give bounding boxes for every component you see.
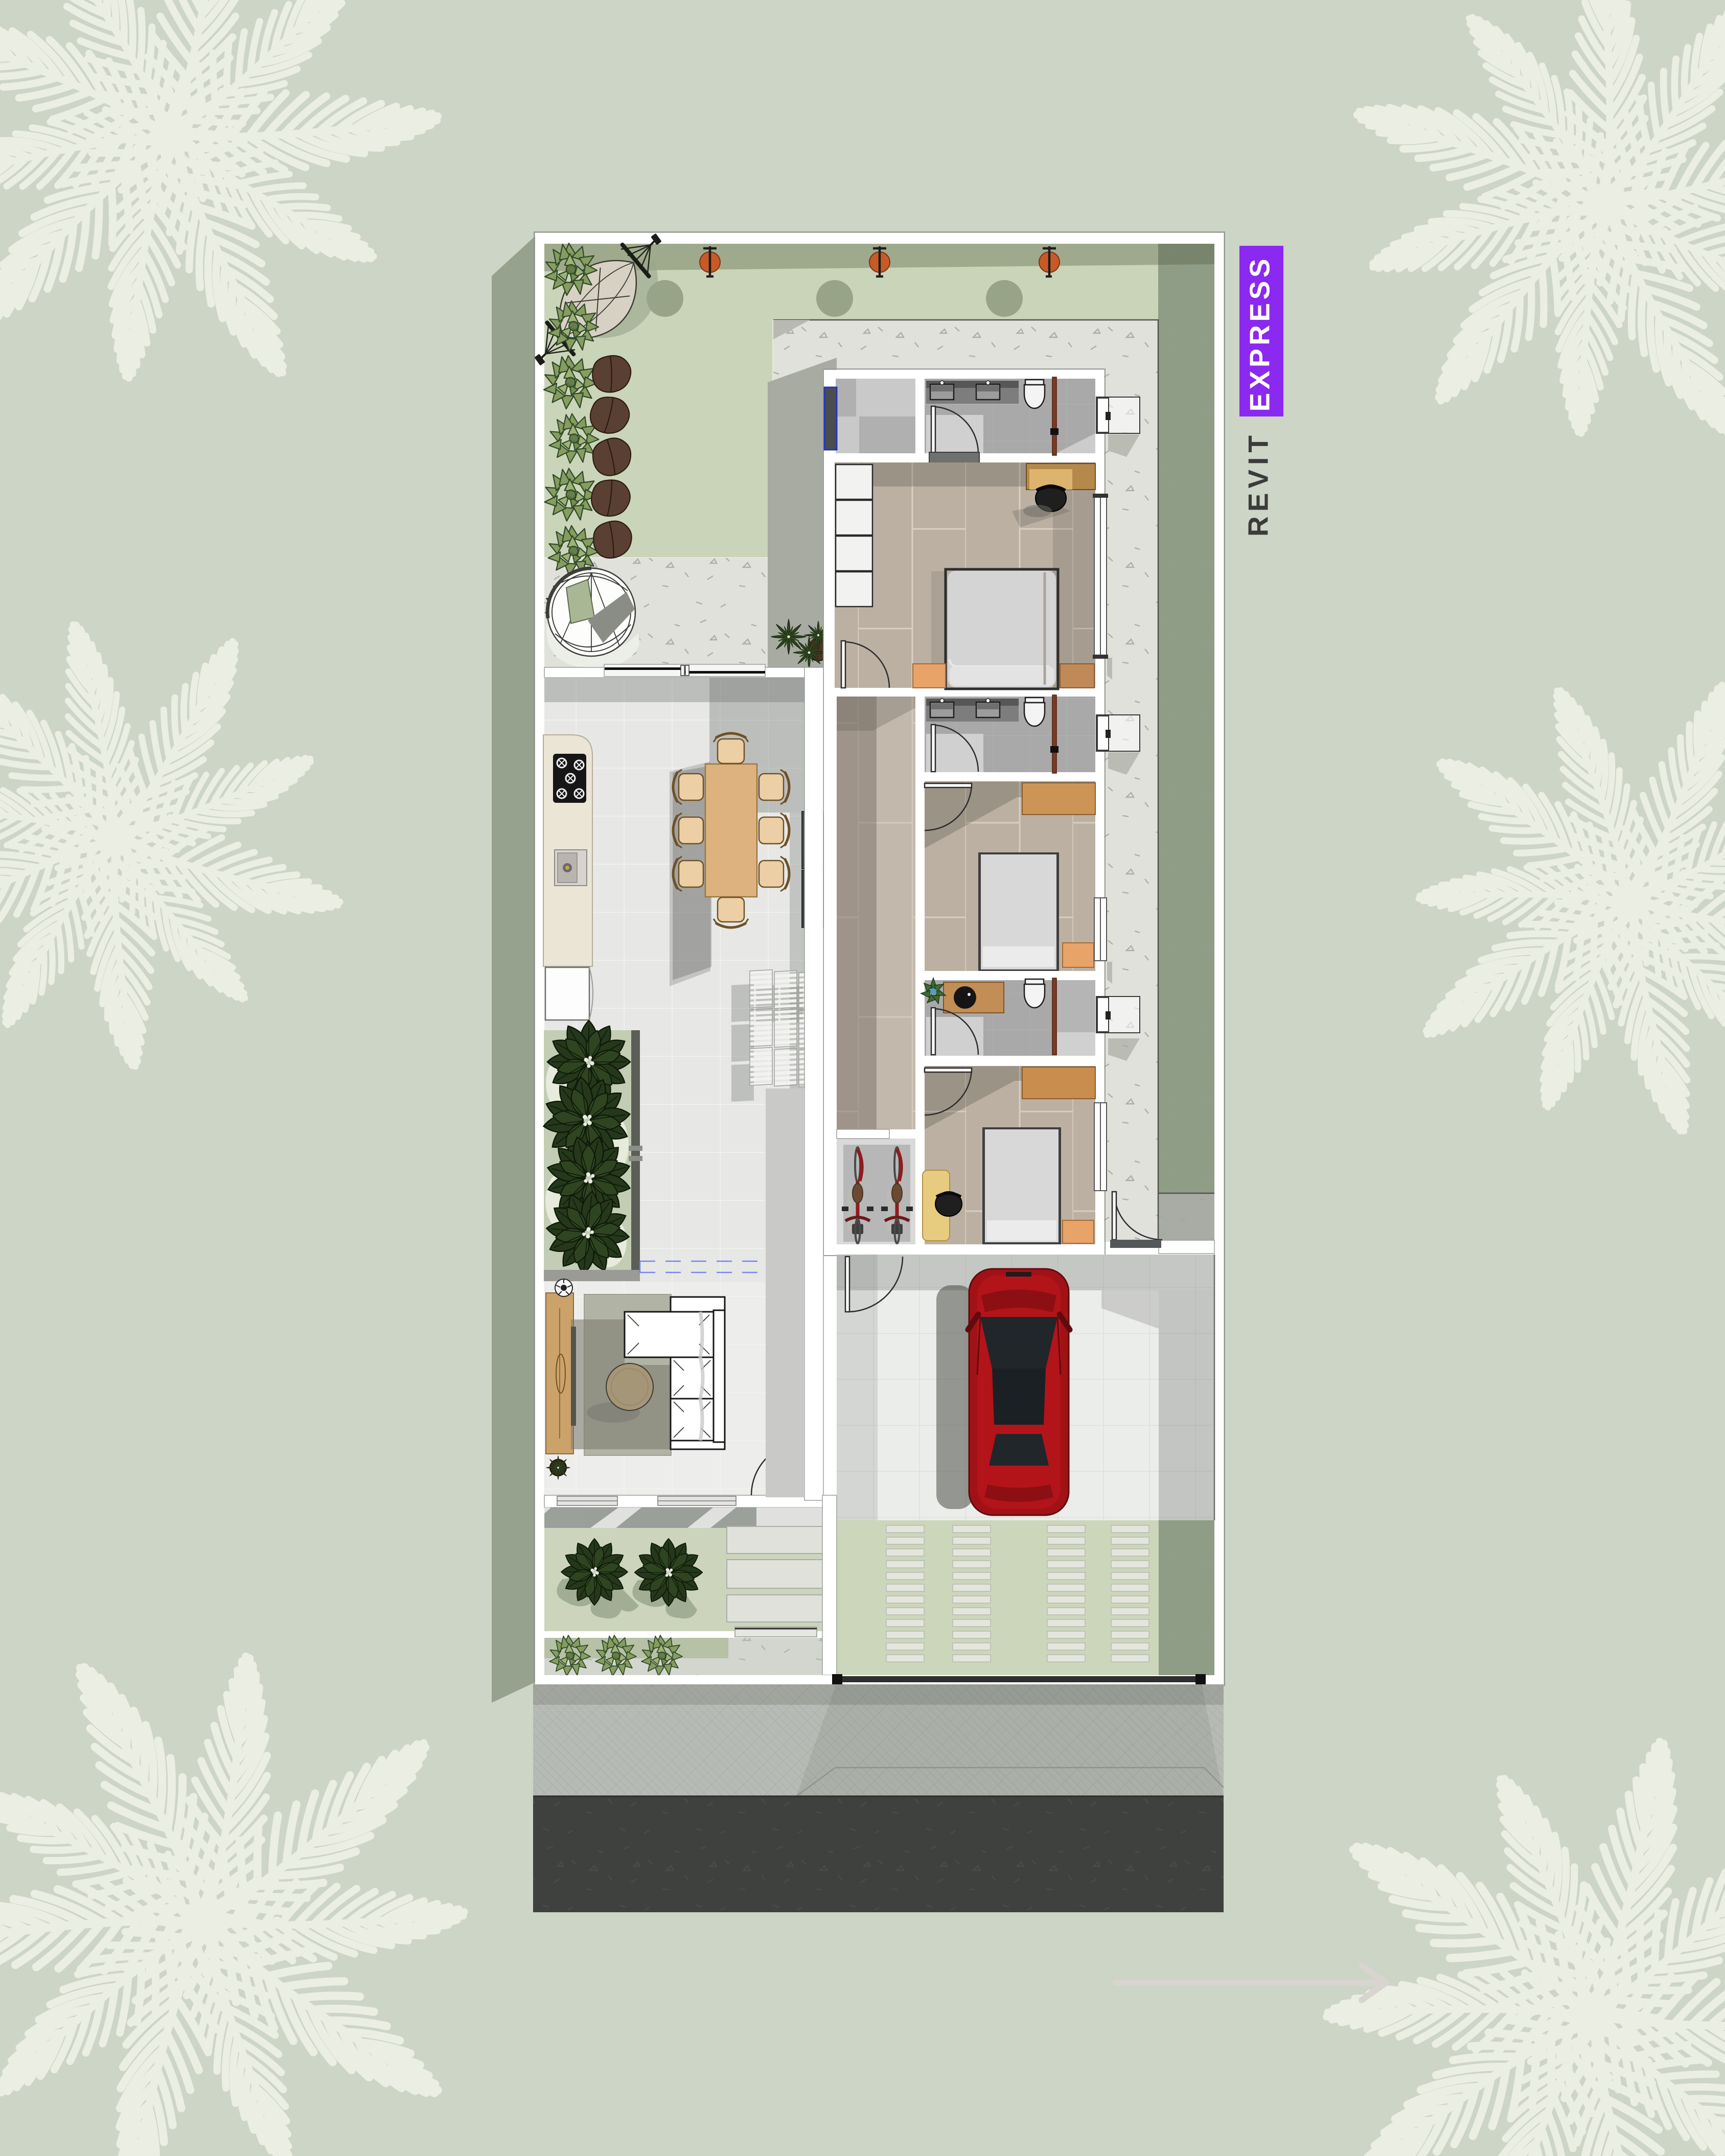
svg-text:REVIT: REVIT — [1243, 431, 1274, 537]
svg-text:EXPRESS: EXPRESS — [1244, 256, 1276, 411]
